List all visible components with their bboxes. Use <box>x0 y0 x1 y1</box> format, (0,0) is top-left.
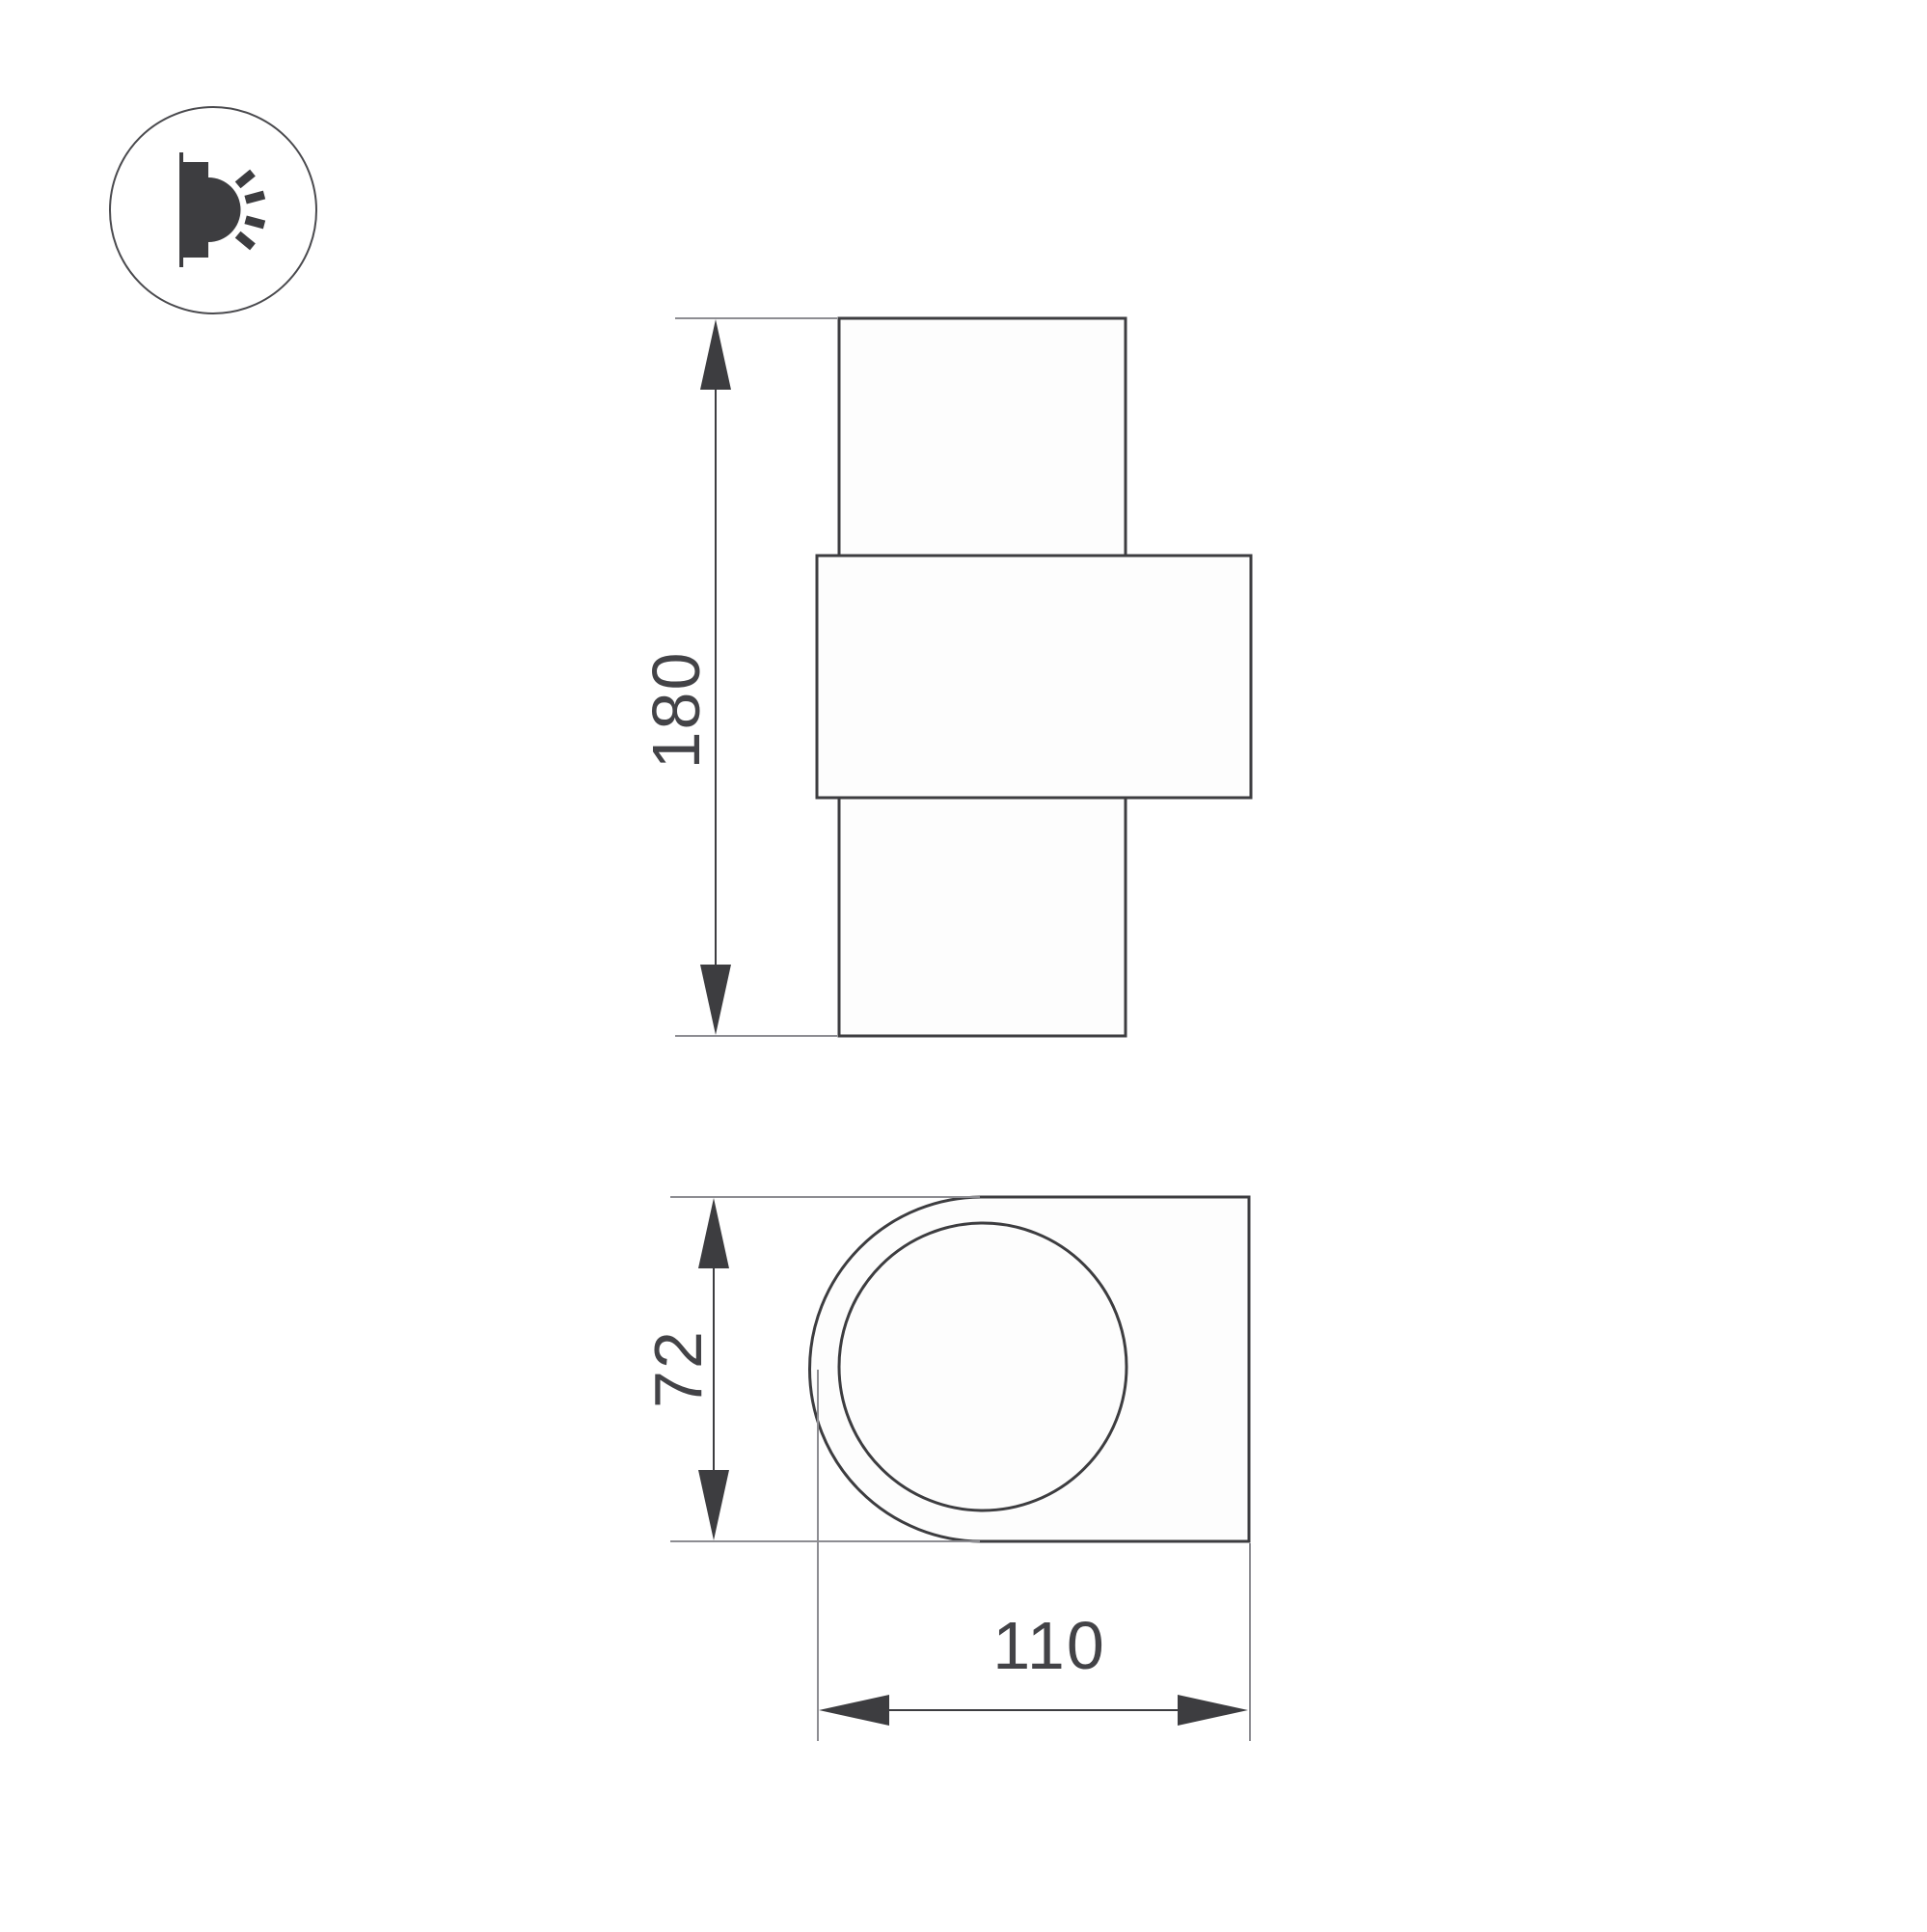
technical-drawing: 180 72 110 <box>0 0 1927 1927</box>
side-view-housing <box>810 1197 1250 1541</box>
arrow-left-icon <box>819 1695 889 1726</box>
side-view: 72 110 <box>640 1197 1250 1741</box>
arrow-up-icon <box>700 319 731 390</box>
dimension-label-180: 180 <box>638 651 714 770</box>
front-height-dimension: 180 <box>638 318 837 1036</box>
arrow-up-icon <box>698 1198 729 1268</box>
arrow-down-icon <box>700 965 731 1035</box>
front-view-body-band <box>817 556 1251 798</box>
icon-wall-line <box>179 152 183 267</box>
dimension-label-110: 110 <box>992 1608 1106 1683</box>
dimension-label-72: 72 <box>640 1329 716 1408</box>
drawing-canvas: 180 72 110 <box>0 0 1927 1927</box>
icon-light-halfcircle <box>208 177 241 242</box>
wall-lamp-icon <box>110 107 316 313</box>
front-view: 180 <box>638 318 1251 1036</box>
icon-light-rays <box>238 173 264 247</box>
arrow-down-icon <box>698 1470 729 1540</box>
icon-lamp-body <box>183 162 208 258</box>
arrow-right-icon <box>1178 1695 1248 1726</box>
